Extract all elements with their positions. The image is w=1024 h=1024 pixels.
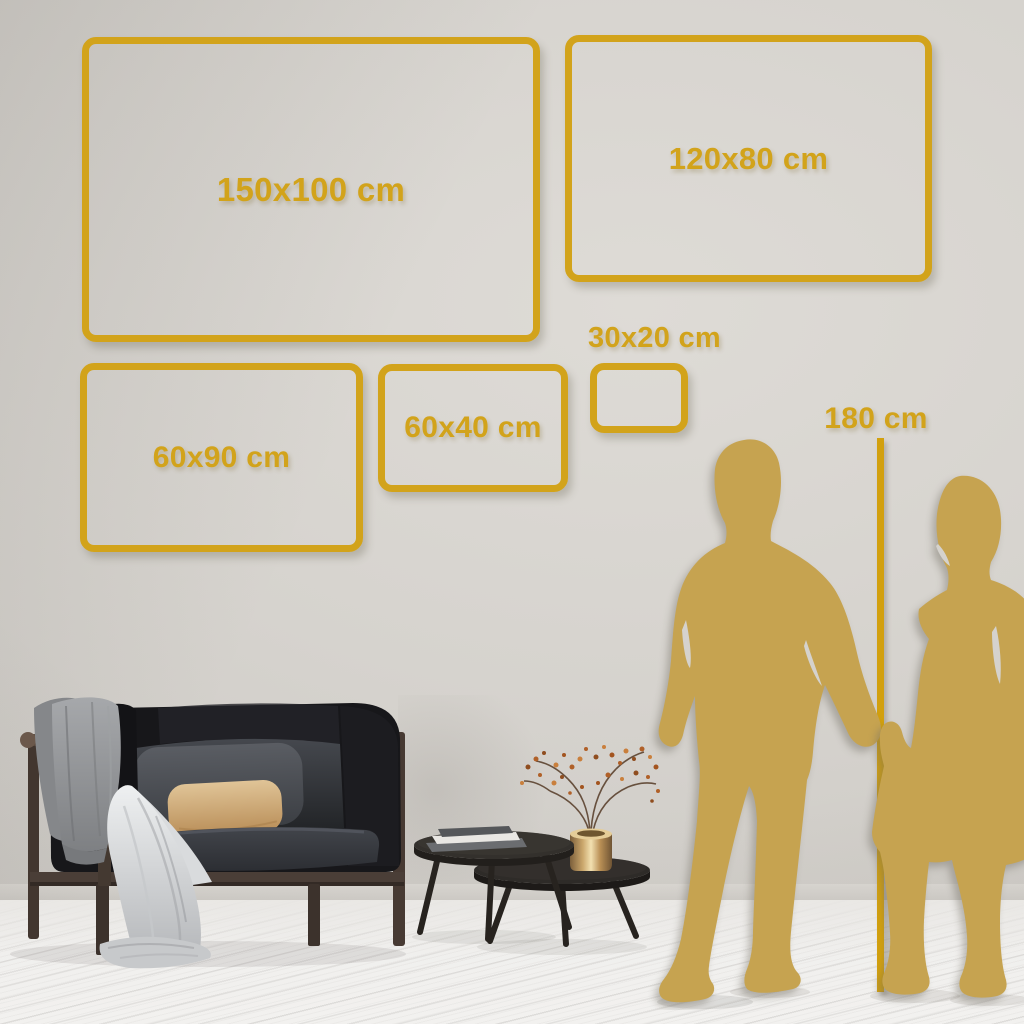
frame-label-60x90: 60x90 cm (153, 441, 291, 475)
frame-label-150x100: 150x100 cm (217, 171, 405, 209)
wall-art-size-guide: 150x100 cm 120x80 cm 30x20 cm 60x40 cm 6… (0, 0, 1024, 1024)
frame-60x90: 60x90 cm (80, 363, 363, 552)
frame-label-30x20: 30x20 cm (588, 322, 721, 355)
frame-120x80: 120x80 cm (565, 35, 932, 282)
sofa-illustration (8, 686, 418, 976)
frame-label-120x80: 120x80 cm (669, 141, 829, 177)
couple-silhouettes (630, 430, 1024, 1010)
frame-30x20 (590, 363, 688, 433)
frame-60x40: 60x40 cm (378, 364, 568, 492)
frame-label-60x40: 60x40 cm (404, 411, 542, 445)
frame-150x100: 150x100 cm (82, 37, 540, 342)
brass-vase (570, 829, 612, 872)
woman-silhouette (872, 476, 1024, 998)
man-silhouette (659, 439, 881, 1002)
